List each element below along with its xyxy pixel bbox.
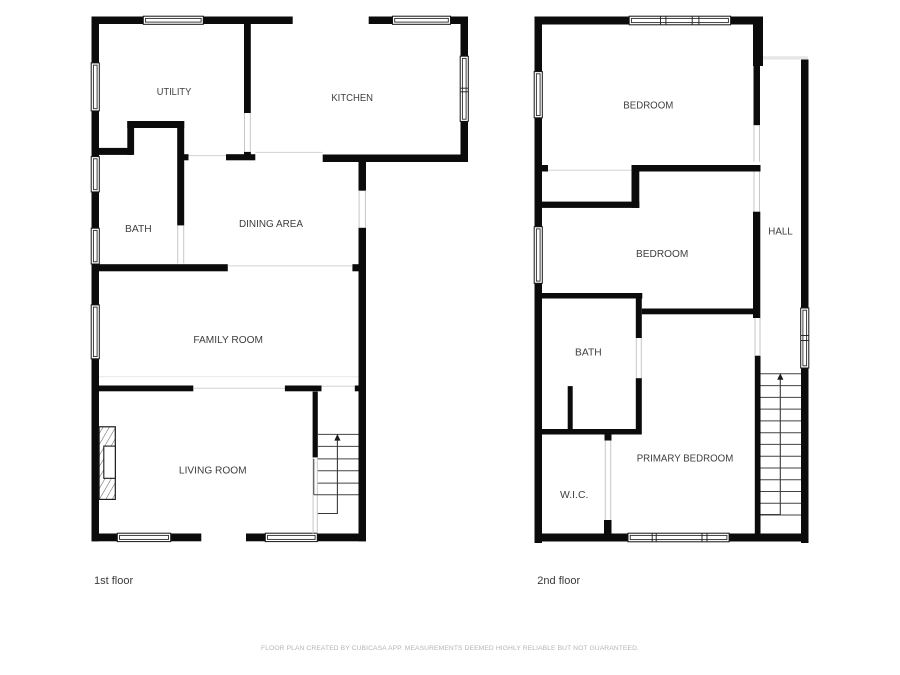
- svg-text:KITCHEN: KITCHEN: [331, 93, 373, 104]
- svg-text:UTILITY: UTILITY: [157, 87, 192, 98]
- svg-text:LIVING ROOM: LIVING ROOM: [179, 465, 247, 476]
- svg-text:W.I.C.: W.I.C.: [560, 490, 588, 501]
- svg-text:FLOOR PLAN CREATED BY CUBICASA: FLOOR PLAN CREATED BY CUBICASA APP. MEAS…: [261, 645, 639, 652]
- svg-text:BATH: BATH: [575, 348, 602, 359]
- svg-text:1st floor: 1st floor: [94, 575, 133, 587]
- svg-text:BEDROOM: BEDROOM: [623, 100, 673, 111]
- svg-text:DINING AREA: DINING AREA: [239, 219, 303, 230]
- svg-text:PRIMARY BEDROOM: PRIMARY BEDROOM: [637, 453, 734, 464]
- svg-text:BEDROOM: BEDROOM: [636, 249, 688, 260]
- svg-text:FAMILY ROOM: FAMILY ROOM: [193, 335, 263, 346]
- svg-text:2nd floor: 2nd floor: [537, 575, 580, 587]
- svg-text:HALL: HALL: [768, 227, 793, 238]
- svg-text:BATH: BATH: [125, 224, 152, 235]
